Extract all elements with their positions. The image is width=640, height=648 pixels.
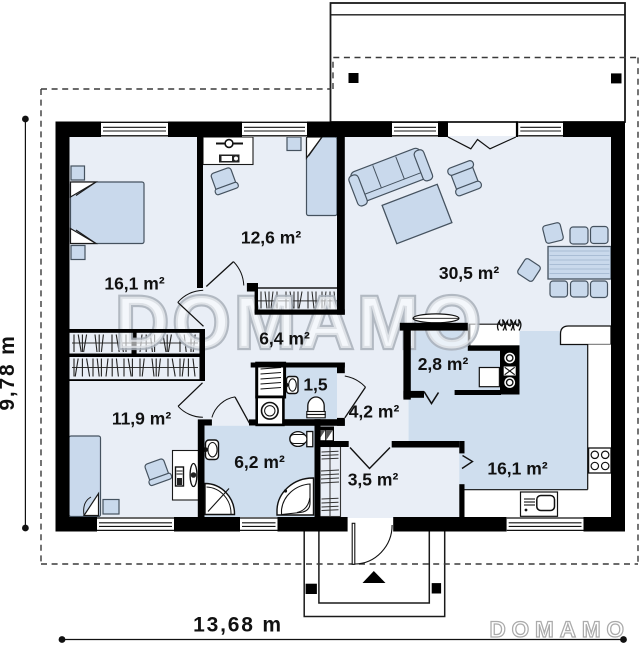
svg-text:DOMAMO: DOMAMO [490, 617, 630, 642]
svg-text:6,2 m²: 6,2 m² [234, 452, 285, 472]
svg-text:12,6 m²: 12,6 m² [241, 228, 301, 248]
svg-text:9,78 m: 9,78 m [0, 334, 19, 410]
svg-text:30,5 m²: 30,5 m² [439, 263, 499, 283]
svg-text:11,9 m²: 11,9 m² [112, 409, 172, 429]
svg-text:16,1 m²: 16,1 m² [487, 459, 547, 479]
svg-text:13,68 m: 13,68 m [193, 614, 283, 637]
svg-text:2,8 m²: 2,8 m² [418, 354, 469, 374]
svg-text:3,5 m²: 3,5 m² [348, 470, 399, 490]
svg-text:4,2 m²: 4,2 m² [349, 402, 400, 422]
svg-text:1,5: 1,5 [303, 375, 328, 395]
svg-text:6,4 m²: 6,4 m² [259, 329, 310, 349]
svg-text:16,1 m²: 16,1 m² [104, 274, 164, 294]
